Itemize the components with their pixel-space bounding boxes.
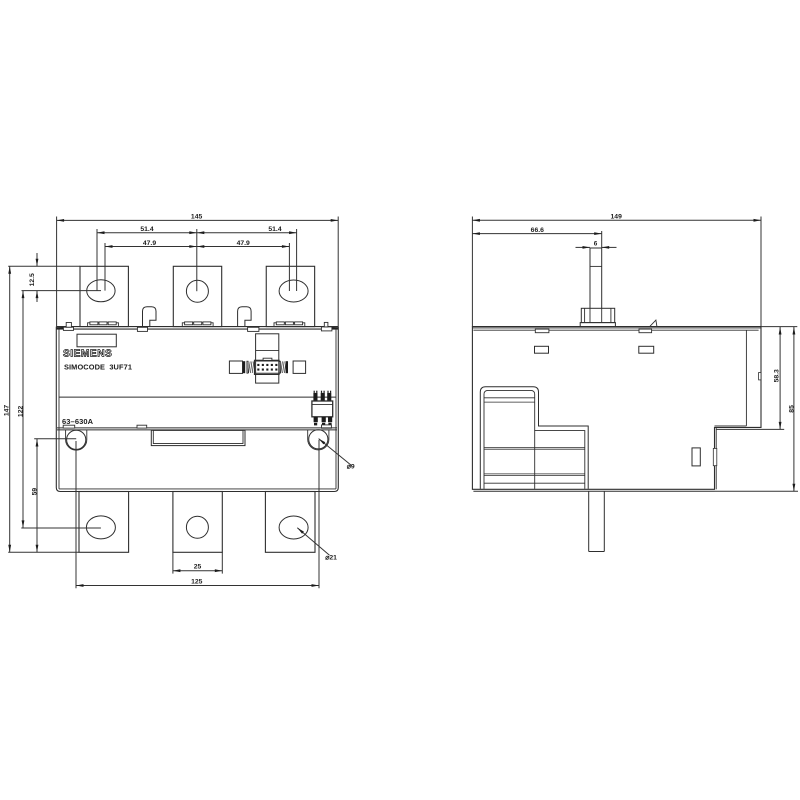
svg-text:125: 125 — [191, 578, 203, 585]
svg-text:58.3: 58.3 — [774, 369, 781, 382]
svg-text:SIMOCODE 3UF71: SIMOCODE 3UF71 — [64, 363, 132, 372]
svg-text:47.9: 47.9 — [237, 240, 250, 247]
svg-text:⌀9: ⌀9 — [347, 464, 355, 471]
svg-text:66.6: 66.6 — [531, 227, 544, 234]
svg-text:⌀21: ⌀21 — [325, 554, 337, 561]
svg-text:51.4: 51.4 — [268, 226, 281, 233]
svg-text:63–630A: 63–630A — [62, 417, 94, 426]
svg-text:6: 6 — [594, 241, 598, 248]
svg-text:47.9: 47.9 — [143, 240, 156, 247]
svg-text:122: 122 — [18, 406, 25, 418]
svg-text:51.4: 51.4 — [140, 226, 153, 233]
svg-text:25: 25 — [194, 564, 202, 571]
svg-text:149: 149 — [611, 213, 623, 220]
svg-text:SIEMENS: SIEMENS — [63, 348, 112, 359]
svg-text:85: 85 — [788, 405, 795, 413]
svg-text:12.5: 12.5 — [29, 273, 36, 286]
svg-text:147: 147 — [3, 405, 10, 417]
svg-text:145: 145 — [191, 214, 203, 221]
svg-text:59: 59 — [32, 488, 39, 496]
